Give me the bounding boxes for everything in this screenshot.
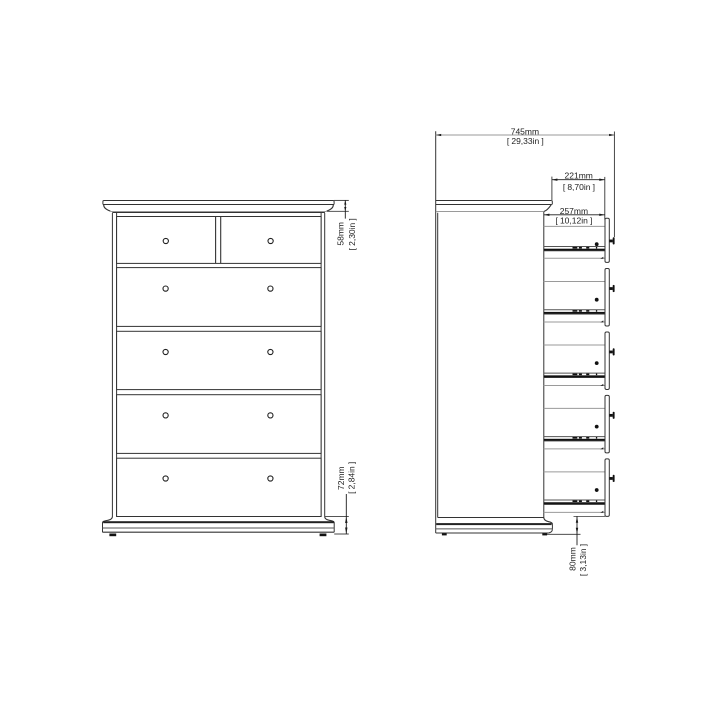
svg-text:745mm: 745mm: [511, 126, 539, 136]
svg-text:221mm: 221mm: [565, 170, 593, 180]
svg-text:257mm: 257mm: [560, 206, 588, 216]
svg-text:58mm: 58mm: [336, 222, 346, 246]
svg-text:80mm: 80mm: [568, 547, 578, 571]
svg-text:[ 8,70in ]: [ 8,70in ]: [563, 182, 595, 192]
svg-text:[ 2,30in ]: [ 2,30in ]: [347, 218, 357, 250]
svg-text:[ 29,33in ]: [ 29,33in ]: [507, 136, 544, 146]
svg-text:72mm: 72mm: [336, 466, 346, 490]
svg-text:[ 2,84in ]: [ 2,84in ]: [346, 462, 356, 494]
svg-text:[ 3,13in ]: [ 3,13in ]: [578, 544, 588, 576]
svg-text:[ 10,12in ]: [ 10,12in ]: [555, 216, 592, 226]
